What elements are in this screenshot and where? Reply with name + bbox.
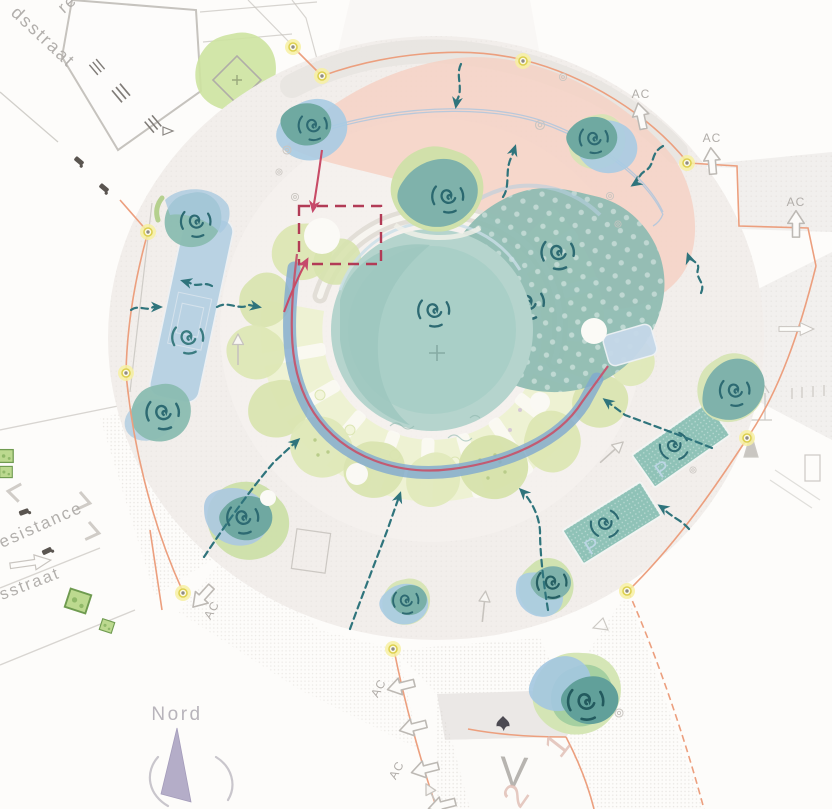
shrub-dot [315,390,325,400]
site-plan-canvas: P P [0,0,832,809]
survey-point-icon [140,224,156,240]
survey-point-icon [739,430,755,446]
scooter-icon [41,546,54,557]
green-planter-icon [0,450,13,463]
scooter-icon [18,507,31,517]
north-needle-icon [161,728,191,802]
ac-label: AC [703,131,722,145]
survey-point-icon [515,53,531,69]
green-planter-icon [0,466,12,477]
survey-point-icon [314,68,330,84]
ac-label: AC [632,87,651,101]
green-planter-icon [65,589,91,614]
ac-label: AC [386,759,407,782]
compass-north: Nord [150,704,233,806]
green-planter-icon [99,619,114,634]
chevron-icon [85,522,100,542]
ac-marker: AC [386,758,440,782]
ac-label: AC [787,195,806,209]
street-label-w: esistance [0,498,86,552]
tree-pit-gap [346,463,368,485]
survey-point-icon [385,641,401,657]
tree-pit-gap [581,318,607,344]
chevron-icon [7,482,21,501]
scooter-icon [98,183,111,196]
compass-label: Nord [151,704,202,725]
survey-point-icon [619,583,635,599]
survey-point-icon [175,585,191,601]
tree-pit-gap [530,392,550,412]
survey-point-icon [118,365,134,381]
survey-point-icon [285,39,301,55]
scooter-icon [73,156,86,169]
site-plan: P P [0,0,832,809]
compass-circle-sketch [216,757,232,800]
door-swing-icon [163,127,173,135]
ac-arrow-icon [409,758,440,781]
survey-point-icon [679,155,695,171]
street-label-sw: sstraat [0,564,63,604]
